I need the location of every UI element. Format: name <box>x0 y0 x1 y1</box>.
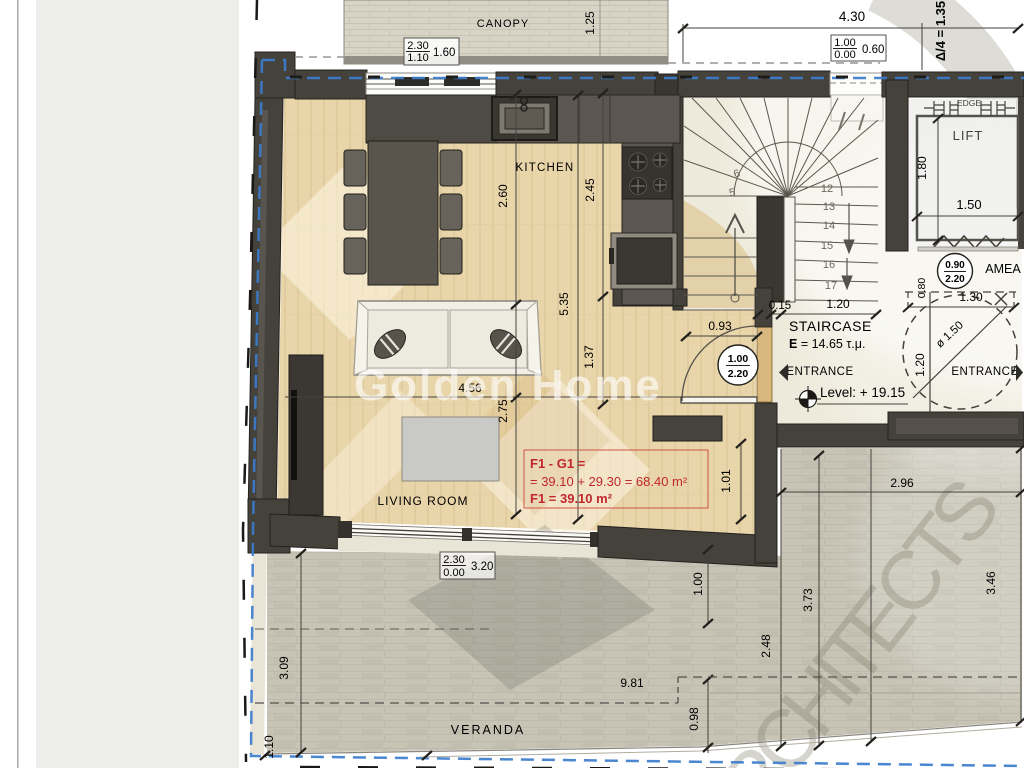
svg-text:= 39.10 + 29.30 = 68.40 m²: = 39.10 + 29.30 = 68.40 m² <box>530 474 688 489</box>
svg-text:1.80: 1.80 <box>915 156 929 180</box>
svg-text:12: 12 <box>821 183 833 195</box>
svg-text:AMEA: AMEA <box>985 262 1021 276</box>
svg-text:2.96: 2.96 <box>890 476 914 490</box>
svg-text:0.80: 0.80 <box>916 278 928 299</box>
svg-text:1.10: 1.10 <box>262 735 276 759</box>
svg-text:0.60: 0.60 <box>862 44 884 56</box>
svg-text:1.10: 1.10 <box>407 52 428 64</box>
svg-text:14: 14 <box>823 220 835 232</box>
svg-text:KITCHEN: KITCHEN <box>516 162 575 174</box>
svg-text:3.09: 3.09 <box>277 656 291 680</box>
svg-text:17: 17 <box>825 280 837 292</box>
svg-text:F1 - G1 =: F1 - G1 = <box>530 456 586 471</box>
svg-text:3.46: 3.46 <box>984 571 998 595</box>
svg-text:15: 15 <box>821 240 833 252</box>
svg-text:3.20: 3.20 <box>471 561 493 573</box>
svg-text:ENTRANCE: ENTRANCE <box>786 366 853 378</box>
svg-text:2.30: 2.30 <box>443 554 464 566</box>
svg-text:0.98: 0.98 <box>687 707 701 731</box>
svg-text:2.20: 2.20 <box>728 368 749 380</box>
svg-text:2.20: 2.20 <box>945 274 965 285</box>
svg-text:Δ/4 = 1.35: Δ/4 = 1.35 <box>933 1 948 61</box>
svg-text:1.60: 1.60 <box>433 47 455 59</box>
svg-text:0.00: 0.00 <box>443 567 464 579</box>
svg-text:CANOPY: CANOPY <box>477 18 529 30</box>
svg-text:4.30: 4.30 <box>839 9 865 24</box>
svg-text:F1 = 39.10 m²: F1 = 39.10 m² <box>530 491 613 506</box>
svg-text:16: 16 <box>823 259 835 271</box>
svg-text:9.81: 9.81 <box>620 676 644 690</box>
svg-text:LIFT: LIFT <box>953 128 984 143</box>
svg-text:3.73: 3.73 <box>801 588 815 612</box>
svg-text:0.00: 0.00 <box>834 49 855 61</box>
svg-text:1.30: 1.30 <box>959 290 983 304</box>
svg-text:1.00: 1.00 <box>728 353 749 365</box>
svg-text:1.25: 1.25 <box>583 11 597 35</box>
svg-text:Golden Home: Golden Home <box>354 361 662 410</box>
svg-text:2.60: 2.60 <box>496 184 510 208</box>
svg-text:1.00: 1.00 <box>834 37 855 49</box>
svg-text:0.90: 0.90 <box>945 260 965 271</box>
svg-text:1.20: 1.20 <box>826 297 850 311</box>
svg-text:2.30: 2.30 <box>407 40 428 52</box>
svg-text:0.15: 0.15 <box>769 300 791 312</box>
svg-text:1.20: 1.20 <box>913 353 927 377</box>
svg-text:0.93: 0.93 <box>708 319 732 333</box>
svg-text:E = 14.65 τ.μ.: E = 14.65 τ.μ. <box>789 337 865 351</box>
svg-text:ENTRANCE: ENTRANCE <box>951 366 1018 378</box>
svg-text:EDGE: EDGE <box>957 98 981 108</box>
svg-text:5.35: 5.35 <box>557 292 571 316</box>
svg-text:VERANDA: VERANDA <box>451 723 525 737</box>
svg-text:1.50: 1.50 <box>956 197 981 212</box>
svg-text:1.01: 1.01 <box>719 469 733 493</box>
svg-text:STAIRCASE: STAIRCASE <box>789 318 872 334</box>
svg-text:13: 13 <box>823 201 835 213</box>
svg-text:Level: + 19.15: Level: + 19.15 <box>820 385 905 400</box>
svg-text:2.45: 2.45 <box>583 178 597 202</box>
svg-text:LIVING ROOM: LIVING ROOM <box>377 494 468 508</box>
svg-text:2.48: 2.48 <box>759 634 773 658</box>
svg-text:1.00: 1.00 <box>691 572 705 596</box>
